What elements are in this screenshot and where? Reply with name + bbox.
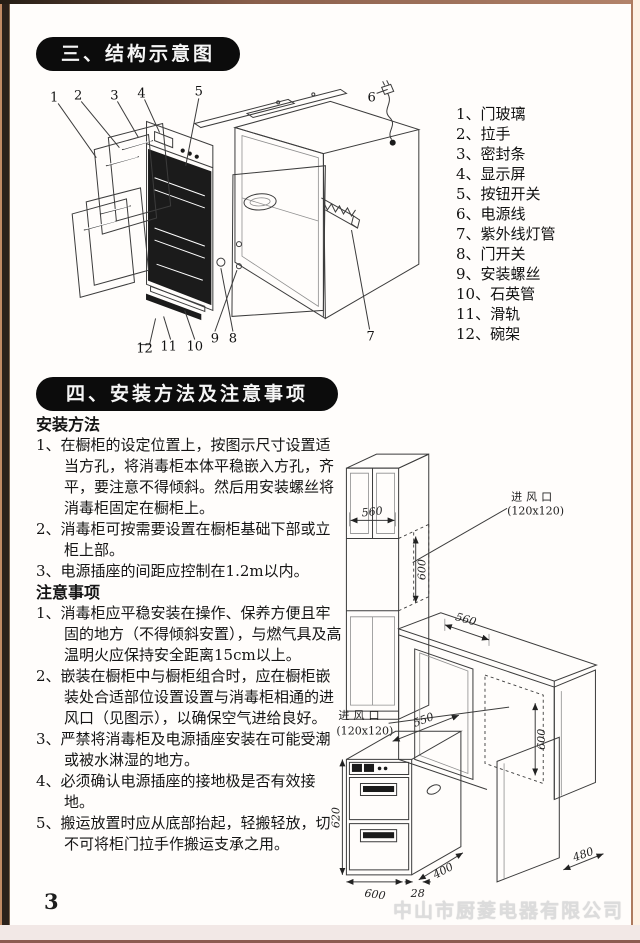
mounting-brackets [195, 89, 347, 127]
item-text: 必须确认电源插座的接地极是否有效接地。 [61, 772, 316, 811]
air-inlet-label-top: 进风口 (120x120) [413, 490, 564, 562]
item-number: 3、 [36, 730, 61, 748]
wire-racks [147, 150, 211, 320]
tall-cabinet [346, 454, 428, 719]
callout-8: 8 [229, 332, 237, 347]
install-item-2: 2、消毒柜可按需要设置在橱柜基础下部或立柜上部。 [36, 519, 343, 561]
part-item: 6、电源线 [456, 204, 556, 224]
callout-9: 9 [211, 332, 219, 347]
installation-dimension-diagram: 560 600 进风口 (120x120) [336, 428, 640, 908]
install-method-heading: 安装方法 [36, 414, 343, 435]
item-text: 严禁将消毒柜及电源插座安装在可能受潮或被水淋湿的地方。 [61, 730, 331, 769]
uv-lamp-tube [321, 198, 359, 228]
dim-560-top: 560 [361, 504, 383, 519]
callout-12: 12 [136, 342, 153, 357]
install-item-3: 3、电源插座的间距应控制在1.2m以内。 [36, 561, 343, 582]
exploded-structure-diagram: 1 2 3 4 5 6 7 8 9 10 11 12 [34, 76, 456, 372]
item-text: 嵌装在橱柜中与橱柜组合时，应在橱柜嵌装处合适部位设置设置与消毒柜相通的进风口（见… [61, 667, 334, 727]
side-cabinet-panel: 480 [497, 737, 603, 882]
callout-5: 5 [195, 84, 203, 99]
part-item: 3、密封条 [456, 144, 556, 164]
callout-3: 3 [110, 88, 118, 103]
part-item: 11、滑轨 [456, 304, 556, 324]
installation-text: 安装方法 1、在橱柜的设定位置上，按图示尺寸设置适当方孔，将消毒柜本体平稳嵌入方… [36, 414, 343, 855]
callout-1: 1 [50, 90, 58, 105]
callout-6: 6 [367, 90, 375, 105]
lower-door-glass [72, 188, 148, 298]
part-item: 12、碗架 [456, 324, 556, 344]
item-number: 2、 [36, 667, 61, 685]
callout-11: 11 [160, 340, 177, 355]
run-dim-600: 600 [535, 703, 548, 775]
inlet-size-bottom: (120x120) [336, 724, 393, 737]
niche-dim-600-top: 600 [416, 536, 429, 602]
item-number: 5、 [36, 814, 61, 832]
dim-620: 620 [329, 807, 342, 828]
unit-cabinet [346, 731, 460, 875]
callout-7: 7 [366, 330, 374, 345]
note-item-5: 5、搬运放置时应从底部抬起，轻搬轻放，切不可将柜门拉手作搬运支承之用。 [36, 813, 343, 855]
callout-2: 2 [74, 88, 82, 103]
run-dim-560: 560 [445, 610, 489, 646]
part-item: 1、门玻璃 [456, 104, 556, 124]
item-text: 消毒柜应平稳安装在操作、保养方便且牢固的地方（不得倾斜安置），与燃气具及高温明火… [61, 604, 342, 664]
item-text: 搬运放置时应从底部抬起，轻搬轻放，切不可将柜门拉手作搬运支承之用。 [61, 814, 331, 853]
callout-10: 10 [186, 340, 203, 355]
item-number: 3、 [36, 562, 61, 580]
power-cord [382, 80, 396, 145]
dim-600-bottom: 600 [364, 887, 387, 903]
part-item: 4、显示屏 [456, 164, 556, 184]
section3-header: 三、结构示意图 [36, 37, 240, 71]
parts-list: 1、门玻璃 2、拉手 3、密封条 4、显示屏 5、按钮开关 6、电源线 7、紫外… [456, 104, 556, 344]
inlet-label-top: 进风口 [511, 490, 556, 503]
install-item-1: 1、在橱柜的设定位置上，按图示尺寸设置适当方孔，将消毒柜本体平稳嵌入方孔，齐平，… [36, 435, 343, 519]
part-item: 9、安装螺丝 [456, 264, 556, 284]
dim-400: 400 [430, 860, 456, 882]
cabinet-body [217, 101, 419, 318]
notes-heading: 注意事项 [36, 582, 343, 603]
part-item: 2、拉手 [456, 124, 556, 144]
item-number: 1、 [36, 436, 61, 454]
part-item: 8、门开关 [456, 244, 556, 264]
item-text: 电源插座的间距应控制在1.2m以内。 [61, 562, 309, 580]
page-number: 3 [44, 889, 59, 914]
dim-600-right: 600 [535, 729, 548, 750]
section4-header: 四、安装方法及注意事项 [36, 377, 338, 411]
dim-560-right: 560 [454, 610, 478, 628]
part-item: 5、按钮开关 [456, 184, 556, 204]
dim-480: 480 [570, 845, 595, 865]
item-number: 2、 [36, 520, 61, 538]
inlet-label-bottom: 进风口 [338, 709, 383, 722]
part-item: 10、石英管 [456, 284, 556, 304]
note-item-1: 1、消毒柜应平稳安装在操作、保养方便且牢固的地方（不得倾斜安置），与燃气具及高温… [36, 603, 343, 666]
item-text: 消毒柜可按需要设置在橱柜基础下部或立柜上部。 [61, 520, 331, 559]
dim-600-top: 600 [416, 559, 429, 580]
item-number: 1、 [36, 604, 61, 622]
door-panel [232, 166, 325, 317]
note-item-3: 3、严禁将消毒柜及电源插座安装在可能受潮或被水淋湿的地方。 [36, 729, 343, 771]
item-number: 4、 [36, 772, 61, 790]
manual-page: 三、结构示意图 [0, 0, 640, 943]
note-item-4: 4、必须确认电源插座的接地极是否有效接地。 [36, 771, 343, 813]
part-item: 7、紫外线灯管 [456, 224, 556, 244]
inlet-size-top: (120x120) [507, 504, 564, 517]
note-item-2: 2、嵌装在橱柜中与橱柜组合时，应在橱柜嵌装处合适部位设置设置与消毒柜相通的进风口… [36, 666, 343, 729]
page-content: 三、结构示意图 [0, 0, 640, 943]
callout-4: 4 [137, 86, 145, 101]
company-watermark: 中山市厨菱电器有限公司 [393, 896, 624, 923]
item-text: 在橱柜的设定位置上，按图示尺寸设置适当方孔，将消毒柜本体平稳嵌入方孔，齐平，要注… [61, 436, 334, 517]
